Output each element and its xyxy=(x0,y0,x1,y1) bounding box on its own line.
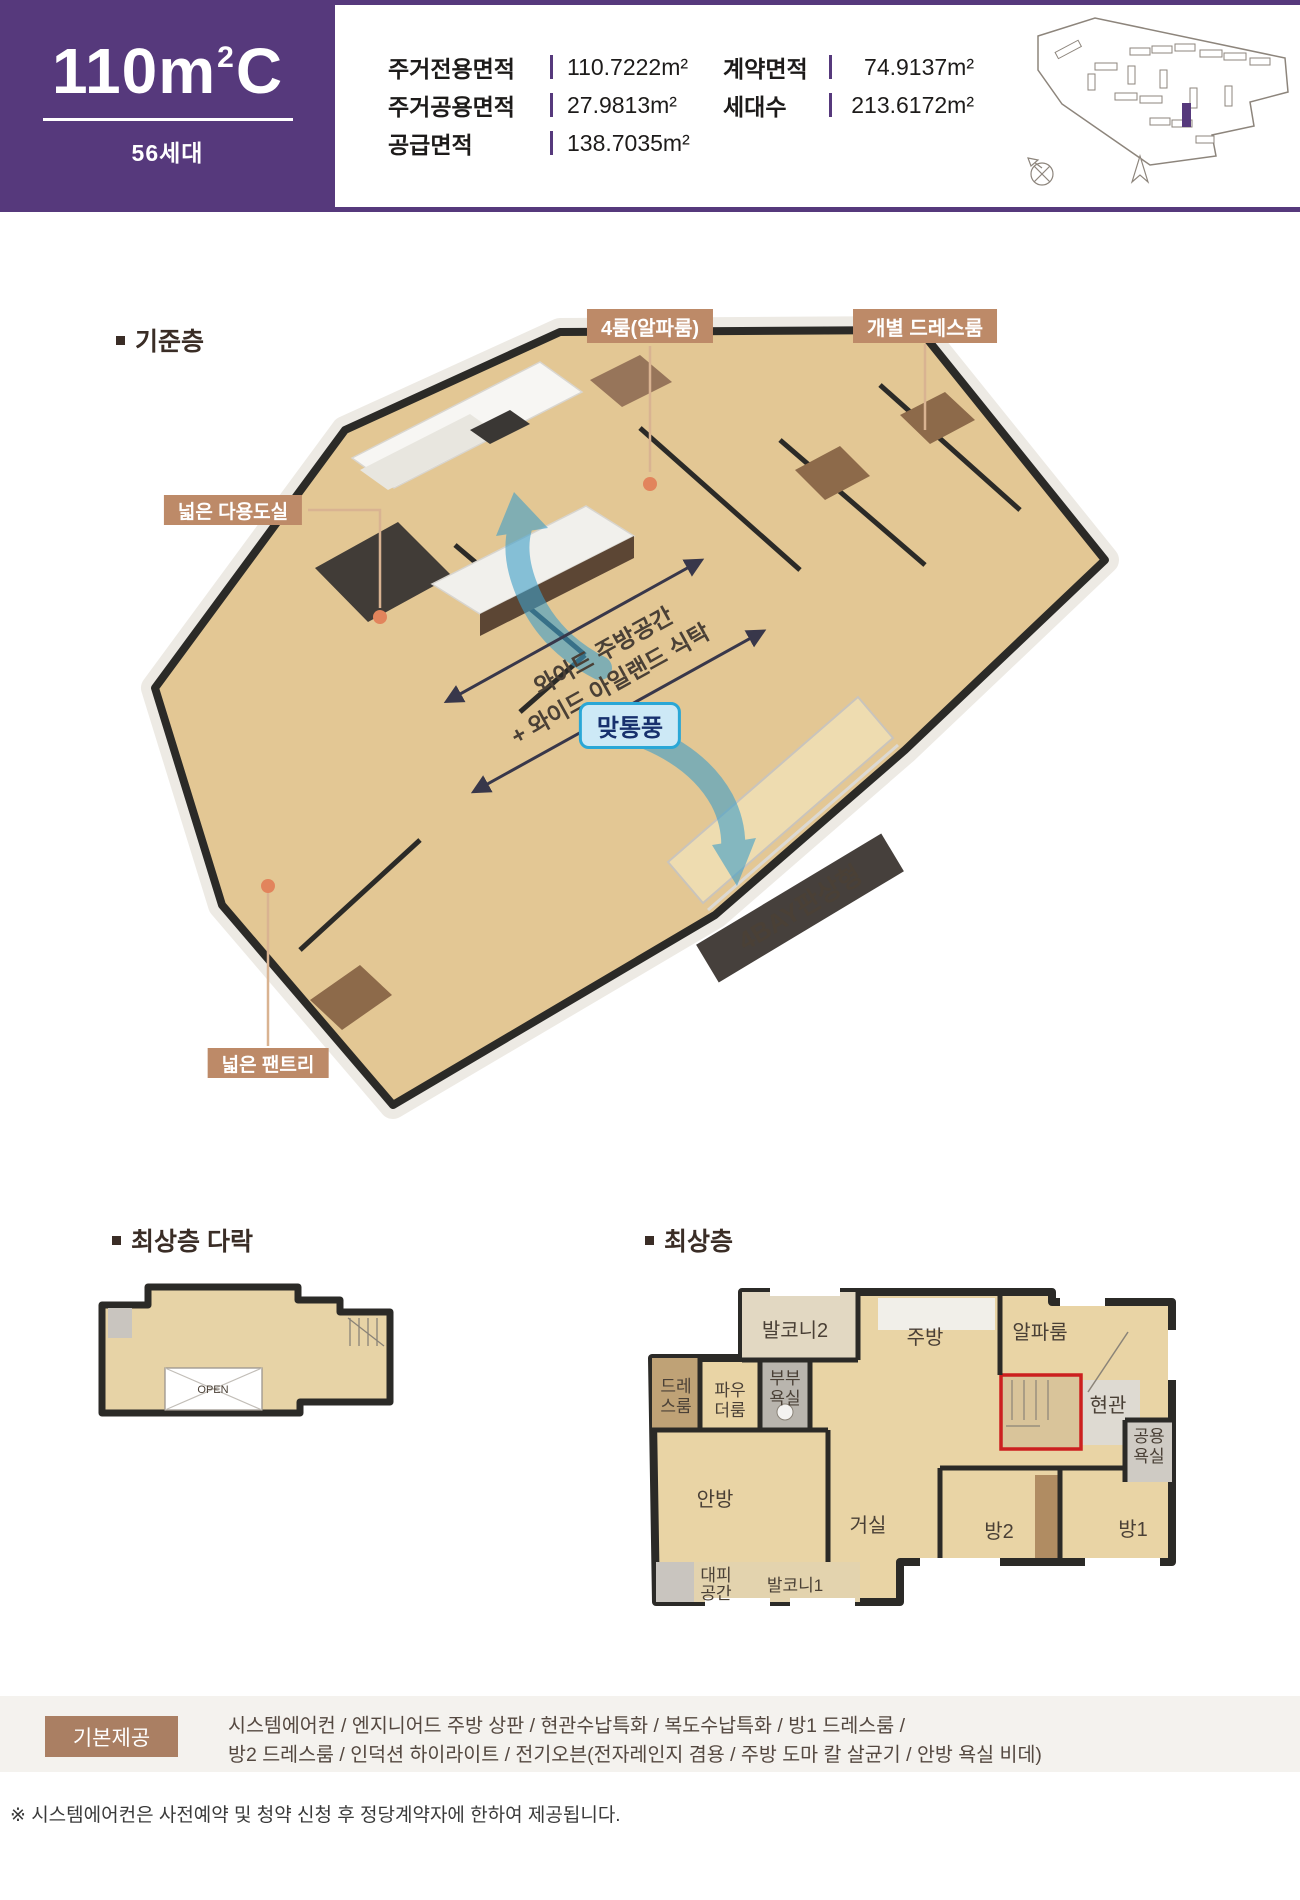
room-bath-l1: 부부 xyxy=(769,1369,800,1388)
section-title-text: 최상층 xyxy=(664,1222,733,1258)
bottom-floor-plans: OPEN xyxy=(80,1260,1200,1630)
unit-type-title: 110m2C xyxy=(52,39,283,103)
section-title-text: 최상층 다락 xyxy=(131,1222,253,1258)
provided-line1: 시스템에어컨 / 엔지니어드 주방 상판 / 현관수납특화 / 복도수납특화 /… xyxy=(228,1712,1042,1741)
spec-value: 27.9813m² xyxy=(567,92,673,119)
unit-unit: m xyxy=(158,39,216,103)
spec-separator xyxy=(829,93,832,117)
room-powder-l1: 파우 xyxy=(714,1381,745,1400)
provided-label-box: 기본제공 xyxy=(45,1716,178,1757)
attic-shaft xyxy=(108,1308,132,1338)
room-balcony2: 발코니2 xyxy=(762,1319,828,1342)
section-title-top-floor: 최상층 xyxy=(645,1222,733,1258)
header-bottom-strip xyxy=(0,207,1300,212)
spec-value: 138.7035m² xyxy=(567,130,673,157)
spec-value: 213.6172m² xyxy=(846,92,974,119)
unit-type-letter: C xyxy=(236,39,283,103)
spec-label: 세대수 xyxy=(723,88,823,122)
kitchen-counter xyxy=(878,1298,995,1330)
spec-label: 계약면적 xyxy=(723,50,823,84)
room-shelter-l2: 공간 xyxy=(700,1584,732,1603)
spec-separator xyxy=(550,93,553,117)
unit-divider xyxy=(43,118,293,121)
spec-separator xyxy=(550,131,553,155)
callout-pantry: 넓은 팬트리 xyxy=(208,1048,329,1078)
compass-icon xyxy=(1028,158,1053,185)
room-pubbath-l2: 욕실 xyxy=(1133,1447,1164,1466)
room-kitchen: 주방 xyxy=(907,1326,944,1349)
room-alpha: 알파룸 xyxy=(1012,1321,1067,1344)
spec-value: 74.9137m² xyxy=(846,54,974,81)
room-shelter-l1: 대피 xyxy=(700,1566,731,1585)
room-entrance: 현관 xyxy=(1090,1394,1127,1417)
area-specs-right: 계약면적 74.9137m² 세대수 213.6172m² xyxy=(723,48,974,124)
spec-row: 주거공용면적 27.9813m² xyxy=(388,86,673,124)
unit-superscript: 2 xyxy=(217,43,235,73)
spec-row: 공급면적 138.7035m² xyxy=(388,124,673,162)
spec-label: 주거전용면적 xyxy=(388,50,544,84)
footnote: ※ 시스템에어컨은 사전예약 및 청약 신청 후 정당계약자에 한하여 제공됩니… xyxy=(10,1800,621,1827)
title-bullet xyxy=(645,1236,654,1245)
title-bullet xyxy=(112,1236,121,1245)
room-dress-l2: 스룸 xyxy=(660,1397,691,1416)
provided-items: 시스템에어컨 / 엔지니어드 주방 상판 / 현관수납특화 / 복도수납특화 /… xyxy=(228,1712,1042,1770)
page: 110m2C 56세대 주거전용면적 110.7222m² 주거공용면적 27.… xyxy=(0,0,1300,1900)
spec-label: 공급면적 xyxy=(388,126,544,160)
spec-row: 주거전용면적 110.7222m² xyxy=(388,48,673,86)
room-powder-l2: 더룸 xyxy=(714,1401,745,1420)
callout-alpha-room: 4룸(알파룸) xyxy=(587,309,713,343)
room-room1: 방1 xyxy=(1118,1518,1148,1541)
unit-number: 110 xyxy=(52,39,158,103)
attic-plan: OPEN xyxy=(102,1287,390,1413)
side-room xyxy=(656,1562,694,1602)
room-living: 거실 xyxy=(850,1514,887,1537)
room-dress-l1: 드레 xyxy=(660,1377,691,1396)
stairs xyxy=(1001,1375,1081,1449)
attic-open-label: OPEN xyxy=(197,1384,228,1396)
closet-strip xyxy=(1035,1475,1060,1558)
spec-row: 계약면적 74.9137m² xyxy=(723,48,974,86)
room-master: 안방 xyxy=(697,1488,734,1511)
spec-separator xyxy=(829,55,832,79)
site-plan-map xyxy=(1000,8,1295,203)
attic-open-void: OPEN xyxy=(165,1368,262,1410)
spec-label: 주거공용면적 xyxy=(388,88,544,122)
room-bath-l2: 욕실 xyxy=(769,1389,800,1408)
spec-separator xyxy=(550,55,553,79)
households-count: 56세대 xyxy=(132,134,204,168)
spec-value: 110.7222m² xyxy=(567,54,673,81)
spec-row: 세대수 213.6172m² xyxy=(723,86,974,124)
top-floor-plan: 발코니2 주방 알파룸 드레 스룸 파우 더룸 부부 욕실 현관 공용 욕실 안… xyxy=(652,1292,1172,1603)
room-balcony1: 발코니1 xyxy=(767,1576,823,1595)
site-boundary xyxy=(1038,18,1288,165)
section-title-attic: 최상층 다락 xyxy=(112,1222,253,1258)
provided-line2: 방2 드레스룸 / 인덕션 하이라이트 / 전기오븐(전자레인지 겸용 / 주방… xyxy=(228,1741,1042,1770)
callout-utility-room: 넓은 다용도실 xyxy=(164,495,302,525)
cross-ventilation-badge: 맞통풍 xyxy=(579,702,681,749)
area-specs-left: 주거전용면적 110.7222m² 주거공용면적 27.9813m² 공급면적 … xyxy=(388,48,673,162)
unit-type-box: 110m2C 56세대 xyxy=(0,0,335,207)
callout-dress-room: 개별 드레스룸 xyxy=(853,309,997,343)
room-pubbath-l1: 공용 xyxy=(1133,1427,1164,1446)
highlighted-building xyxy=(1182,103,1191,127)
room-room2: 방2 xyxy=(984,1520,1014,1543)
